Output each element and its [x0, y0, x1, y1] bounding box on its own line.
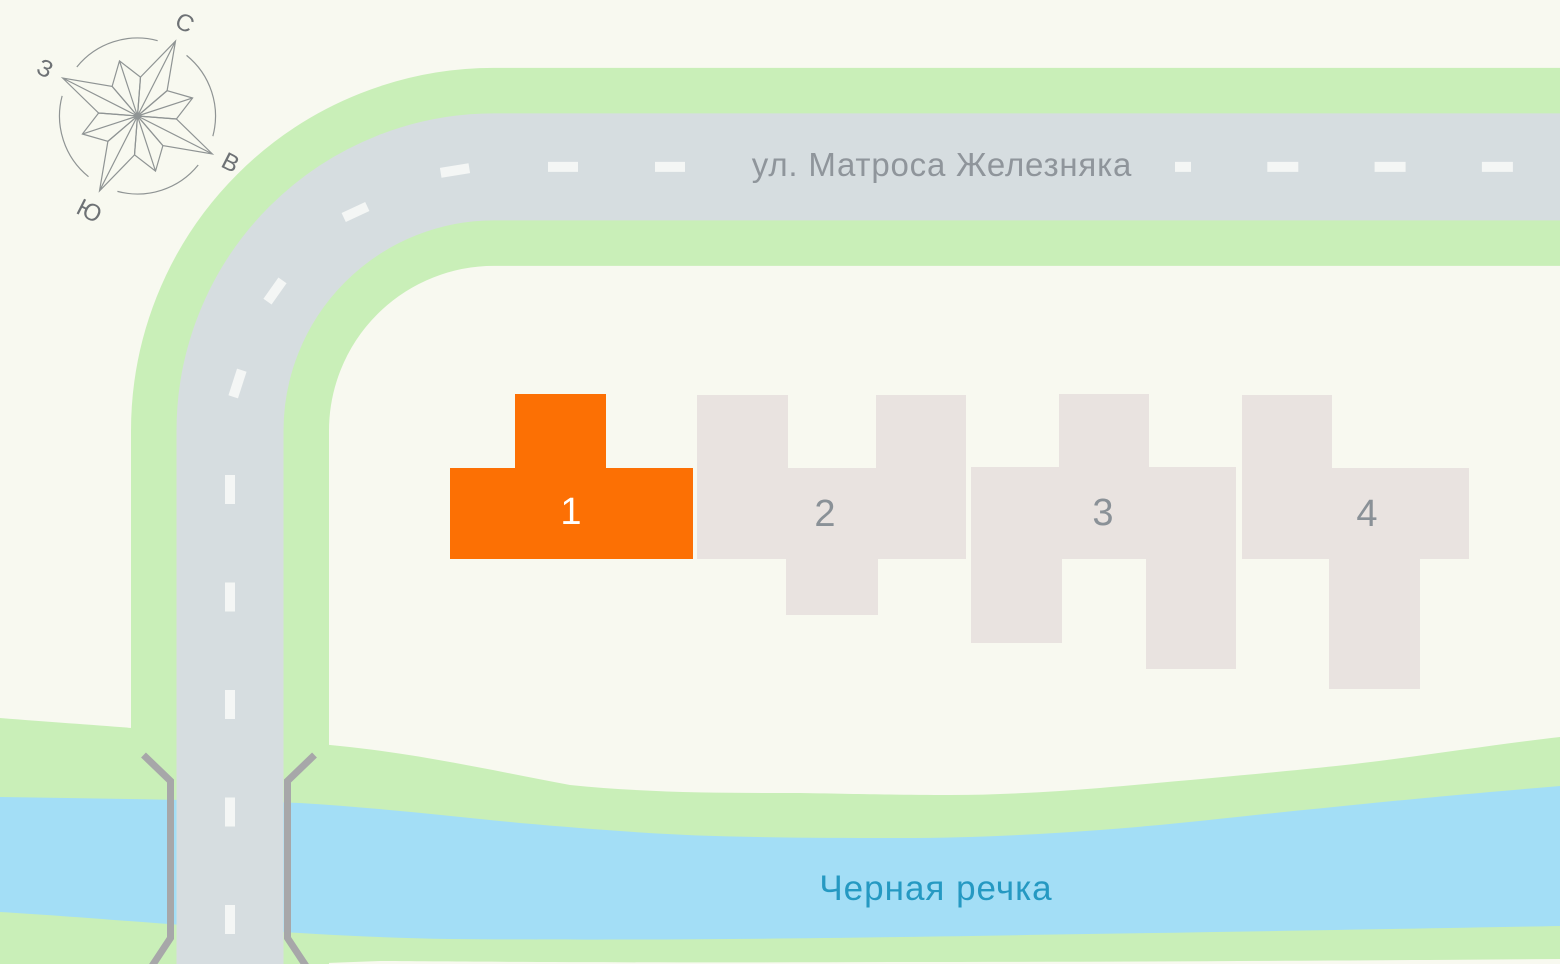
svg-text:ул. Матроса Железняка: ул. Матроса Железняка [752, 146, 1132, 183]
svg-text:4: 4 [1356, 493, 1377, 535]
svg-text:Черная речка: Черная речка [819, 869, 1052, 908]
svg-text:2: 2 [814, 493, 835, 535]
svg-text:1: 1 [560, 491, 581, 533]
svg-text:3: 3 [1092, 492, 1113, 534]
